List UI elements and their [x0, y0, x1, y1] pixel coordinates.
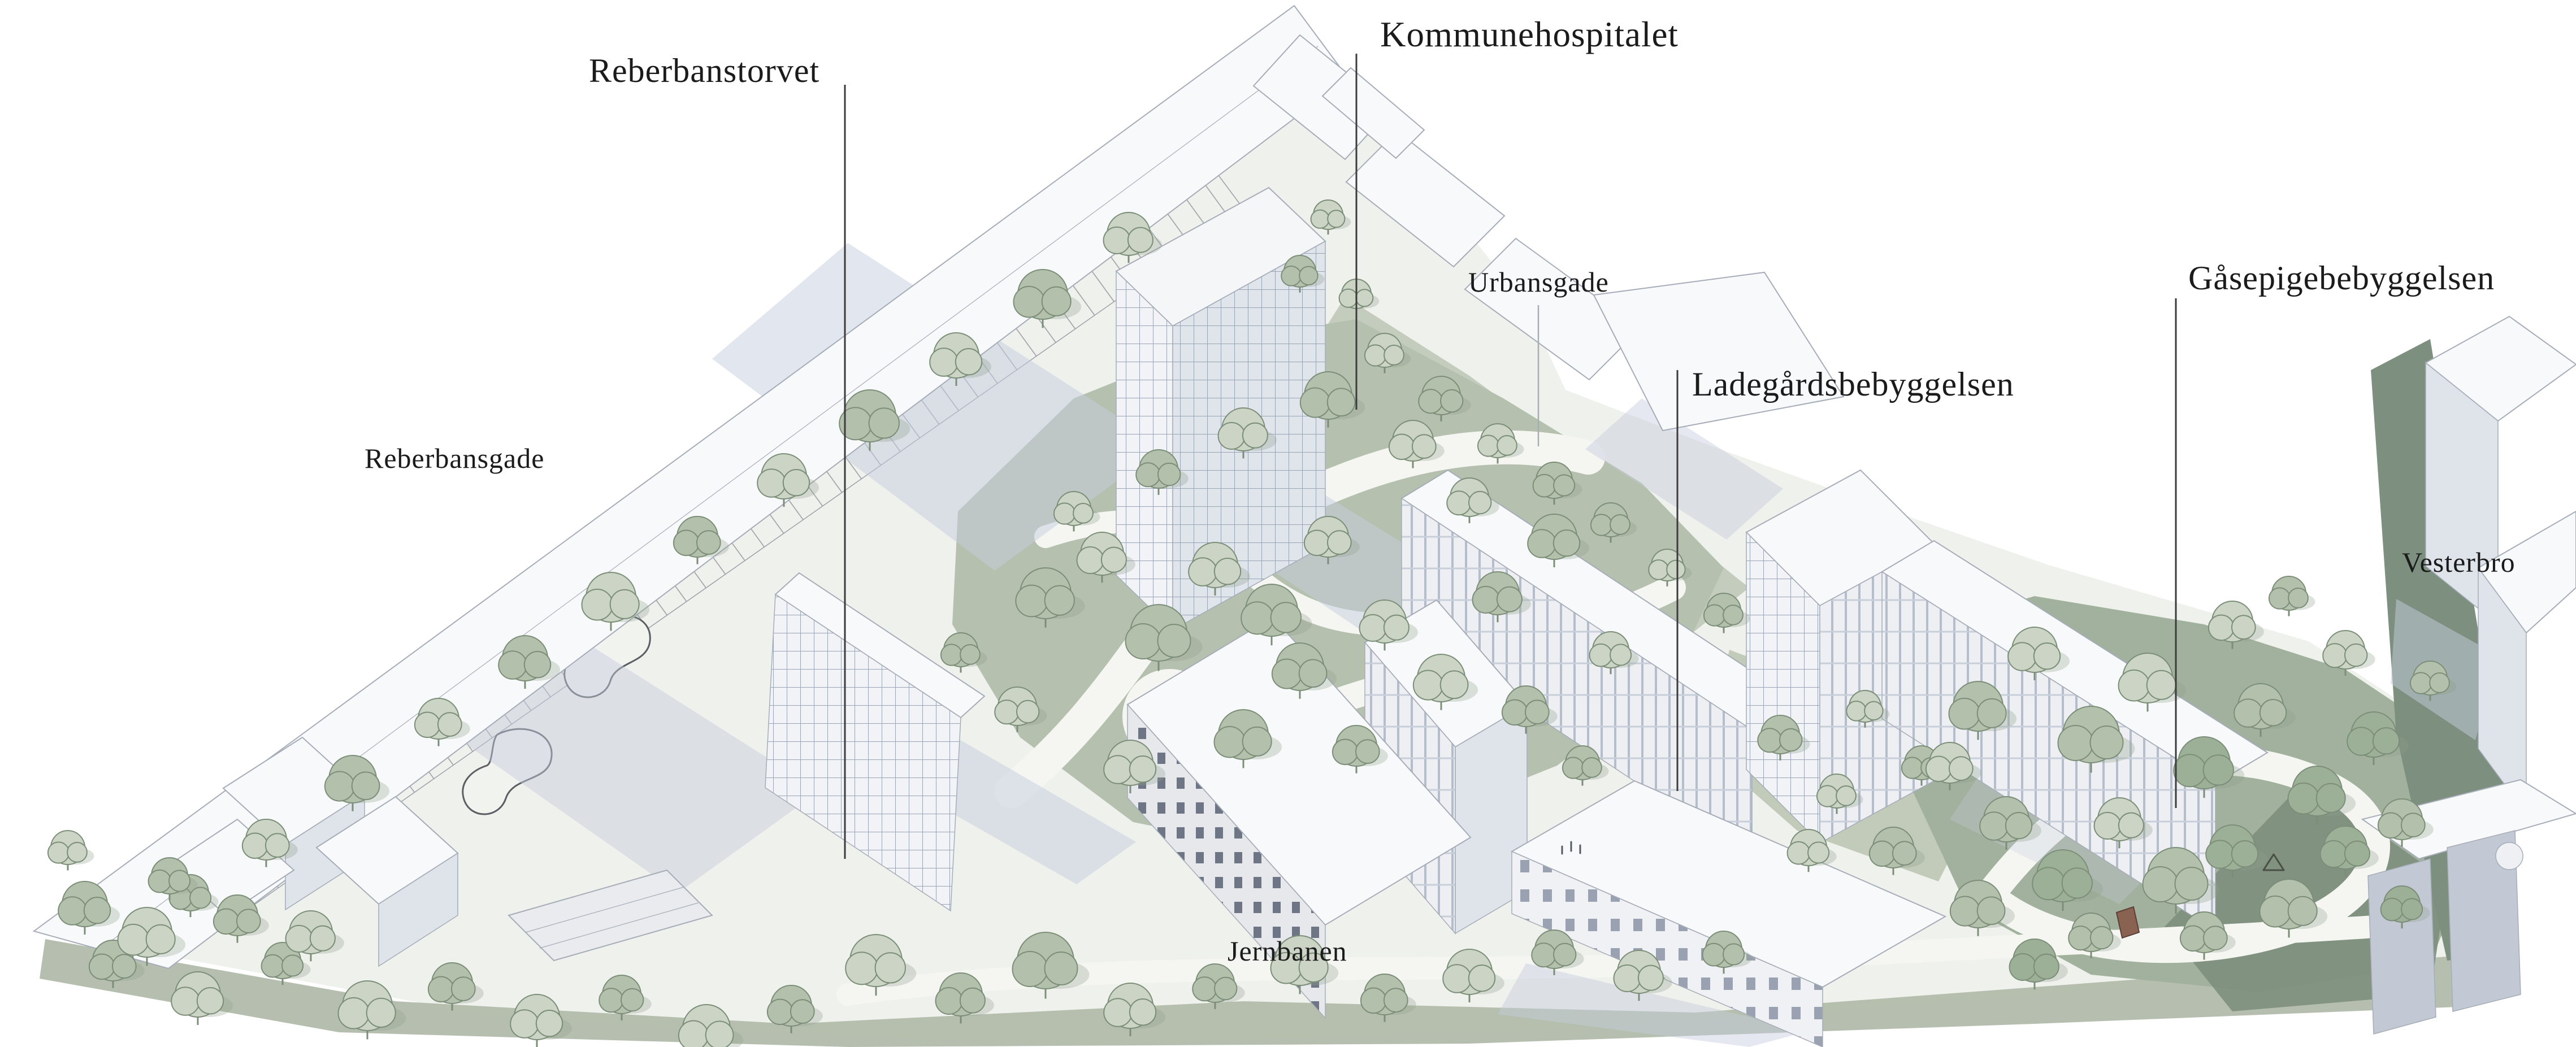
label-gaasepigebebyggelsen: Gåsepigebebyggelsen	[2188, 259, 2495, 297]
tree-canopy	[1300, 388, 1330, 418]
tree-canopy	[367, 998, 396, 1027]
tree-canopy	[1532, 943, 1555, 967]
tree-canopy	[1136, 463, 1160, 486]
tree-canopy	[791, 1000, 814, 1023]
tree-canopy	[1104, 998, 1132, 1027]
tree-canopy	[1130, 756, 1156, 782]
tree-canopy	[1365, 345, 1386, 366]
tree-canopy	[706, 1021, 734, 1047]
tree-canopy	[2034, 643, 2060, 669]
tree-canopy	[1013, 952, 1048, 987]
tree-canopy	[1949, 757, 1973, 780]
tree-canopy	[428, 976, 454, 1002]
tree-canopy	[2204, 926, 2227, 950]
tree-canopy	[2410, 672, 2431, 693]
tree-canopy	[1497, 436, 1517, 455]
tree-canopy	[1846, 701, 1866, 721]
tree-canopy	[1723, 605, 1743, 625]
tree-canopy	[1299, 659, 1327, 687]
tree-canopy	[1328, 531, 1351, 554]
tree-canopy	[610, 590, 639, 619]
tree-canopy	[214, 909, 239, 934]
tree-canopy	[197, 988, 223, 1014]
tree-canopy	[1243, 727, 1272, 756]
tree-canopy	[2209, 615, 2234, 640]
label-jernbanen: Jernbanen	[1228, 935, 1347, 967]
tree-canopy	[2232, 841, 2258, 867]
tree-canopy	[1478, 435, 1499, 456]
tree-canopy	[2323, 644, 2347, 667]
tree-canopy	[118, 924, 149, 955]
tree-canopy	[262, 955, 284, 978]
tree-canopy	[1926, 756, 1951, 781]
tree-canopy	[1104, 227, 1130, 254]
tree-canopy	[171, 987, 200, 1015]
tree-canopy	[2381, 898, 2404, 921]
tree-canopy	[2260, 896, 2291, 927]
tree-canopy	[282, 955, 303, 976]
tree-canopy	[1950, 897, 1980, 926]
tree-canopy	[1361, 988, 1386, 1013]
tree-canopy	[582, 589, 613, 620]
tree-canopy	[310, 926, 335, 951]
tree-canopy	[237, 909, 261, 933]
tree-canopy	[2143, 867, 2178, 902]
tree-canopy	[1014, 286, 1045, 318]
tree-canopy	[1054, 503, 1075, 524]
tree-canopy	[2091, 726, 2123, 759]
tree-canopy	[536, 1010, 562, 1036]
tree-canopy	[783, 470, 809, 496]
tree-canopy	[1104, 755, 1132, 784]
tree-canopy	[1215, 727, 1246, 758]
masterplan-illustration: Reberbanstorvet Kommunehospitalet Urbans…	[0, 0, 2576, 1047]
tree-canopy	[956, 349, 982, 375]
tree-canopy	[1447, 491, 1471, 515]
tree-canopy	[1360, 615, 1386, 641]
tree-canopy	[1128, 228, 1153, 253]
tree-canopy	[1703, 944, 1725, 966]
tree-canopy	[1328, 388, 1355, 416]
tree-canopy	[58, 897, 86, 925]
tree-canopy	[2206, 840, 2234, 868]
tree	[2269, 576, 2315, 616]
tree-canopy	[679, 1021, 708, 1047]
tree-canopy	[1189, 558, 1217, 586]
tree-canopy	[2345, 644, 2367, 666]
tree-canopy	[1469, 965, 1495, 991]
tree-canopy	[1215, 558, 1241, 584]
tree-canopy	[1384, 988, 1408, 1012]
tree-canopy	[524, 651, 550, 677]
tree-canopy	[339, 998, 370, 1029]
tree-canopy	[1638, 966, 1663, 990]
tree-canopy	[2091, 927, 2113, 949]
tree-canopy	[149, 870, 171, 893]
tree-canopy	[1241, 602, 1273, 634]
tree-canopy	[757, 469, 786, 497]
tree-canopy	[2006, 813, 2032, 839]
tree-canopy	[1554, 475, 1575, 496]
tree-canopy	[286, 926, 313, 952]
tree-canopy	[2269, 588, 2290, 609]
tree-canopy	[2034, 954, 2059, 979]
tree-canopy	[1590, 644, 1612, 667]
tree-canopy	[1902, 757, 1923, 778]
label-vesterbro: Vesterbro	[2402, 546, 2516, 578]
label-reberbansgade: Reberbansgade	[365, 442, 544, 474]
tree-canopy	[1218, 423, 1245, 449]
label-reberbanstorvet: Reberbanstorvet	[589, 52, 819, 89]
tree-canopy	[1704, 605, 1725, 625]
hospital-pavilion	[1594, 272, 1844, 431]
tree-canopy	[2288, 897, 2317, 926]
tree-canopy	[2401, 898, 2422, 919]
tree-canopy	[2062, 868, 2092, 898]
tree-canopy	[767, 999, 793, 1024]
tree-canopy	[2288, 783, 2319, 814]
tree-canopy	[936, 988, 962, 1014]
roof-turret	[2496, 842, 2523, 870]
tree-canopy	[2008, 642, 2036, 671]
tree-canopy	[2345, 841, 2370, 866]
tree-canopy	[960, 645, 980, 664]
tree-canopy	[1817, 785, 1838, 806]
tree-canopy	[1977, 897, 2005, 924]
tree-canopy	[1077, 547, 1104, 574]
tree-canopy	[2347, 727, 2375, 755]
tree-canopy	[1949, 698, 1980, 729]
tree-canopy	[498, 651, 527, 679]
tree-canopy	[2175, 867, 2208, 900]
tree-canopy	[1126, 624, 1161, 659]
tree-canopy	[2232, 615, 2256, 639]
tree-canopy	[48, 842, 69, 863]
tree-canopy	[1441, 390, 1463, 412]
tree-canopy	[112, 954, 136, 978]
tree-canopy	[1384, 615, 1409, 640]
tree-canopy	[697, 531, 721, 554]
tree-canopy	[1788, 842, 1810, 864]
tree-canopy	[1339, 289, 1358, 307]
tree-canopy	[869, 408, 899, 438]
tree-canopy	[452, 977, 475, 1001]
tree-canopy	[1419, 389, 1442, 413]
tree-canopy	[2321, 841, 2347, 867]
tree-canopy	[1723, 944, 1744, 965]
tree-canopy	[941, 644, 962, 665]
tree-canopy	[1582, 758, 1602, 777]
tree-canopy	[1554, 944, 1576, 966]
tree	[48, 831, 94, 871]
tree-canopy	[995, 700, 1018, 724]
site-illustration-layer	[34, 6, 2576, 1047]
tree-canopy	[2234, 699, 2262, 727]
tree-canopy	[1469, 492, 1491, 514]
tree-canopy	[84, 897, 110, 923]
tree-canopy	[2430, 673, 2449, 693]
tree-canopy	[1158, 463, 1180, 485]
tree-canopy	[1384, 345, 1404, 365]
tree-canopy	[930, 348, 958, 376]
tree-canopy	[1017, 701, 1039, 723]
tree-canopy	[875, 953, 905, 983]
tree-canopy	[1412, 435, 1436, 458]
tree-canopy	[1502, 700, 1528, 725]
label-kommunehospitalet: Kommunehospitalet	[1380, 15, 1679, 54]
tree-canopy	[1192, 977, 1216, 1001]
label-urbansgade: Urbansgade	[1468, 266, 1609, 298]
tree-canopy	[2260, 700, 2286, 725]
tree-canopy	[1563, 757, 1584, 778]
tree-canopy	[599, 988, 623, 1012]
tree-canopy	[2032, 867, 2065, 900]
tree-canopy	[1328, 210, 1345, 227]
tree-canopy	[1441, 671, 1468, 698]
tree-canopy	[1443, 965, 1471, 993]
tree-canopy	[1497, 587, 1522, 612]
tree-canopy	[1667, 561, 1685, 579]
tree-canopy	[352, 772, 380, 800]
tree-canopy	[1281, 266, 1301, 286]
tree-canopy	[1045, 952, 1078, 985]
tree-canopy	[1304, 530, 1330, 555]
tree-canopy	[1836, 786, 1856, 806]
tree-canopy	[1554, 530, 1580, 556]
tree-canopy	[2010, 954, 2036, 980]
tree-canopy	[1528, 529, 1556, 558]
tree-canopy	[1333, 739, 1358, 764]
tree-canopy	[1977, 699, 2006, 728]
tree-canopy	[1130, 999, 1156, 1025]
tree-canopy	[2147, 671, 2176, 700]
tree-canopy	[2119, 670, 2150, 701]
tree-canopy	[2378, 813, 2404, 838]
tree-canopy	[1473, 587, 1499, 613]
tree-canopy	[510, 1010, 539, 1038]
tree-canopy	[2204, 755, 2234, 785]
tree-canopy	[1610, 515, 1630, 535]
tree-canopy	[1808, 842, 1829, 863]
tree-canopy	[2180, 926, 2206, 951]
tree-canopy	[2317, 784, 2345, 813]
tree-canopy	[1980, 812, 2008, 840]
tree-canopy	[2373, 728, 2399, 754]
tree-canopy	[1016, 585, 1047, 617]
tree-canopy	[2288, 588, 2308, 608]
tree-canopy	[2119, 813, 2144, 838]
tree-canopy	[960, 988, 985, 1013]
tree-canopy	[2094, 813, 2121, 839]
tree-canopy	[266, 833, 289, 857]
tree-canopy	[1870, 841, 1895, 866]
tree-canopy	[1243, 423, 1268, 448]
tree-canopy	[1389, 434, 1415, 459]
masterplan-canvas: Reberbanstorvet Kommunehospitalet Urbans…	[0, 0, 2576, 1047]
vesterbro-block-face	[2368, 859, 2436, 1034]
tree-canopy	[438, 713, 462, 736]
tree-canopy	[1215, 978, 1237, 1000]
tree-canopy	[415, 712, 440, 737]
tree-canopy	[325, 772, 354, 801]
tree-canopy	[1413, 671, 1443, 700]
tree-canopy	[1780, 729, 1802, 751]
tree-canopy	[89, 954, 115, 979]
tree-canopy	[1073, 503, 1093, 523]
tree-canopy	[1533, 475, 1556, 497]
tree-canopy	[2401, 813, 2425, 837]
tree-canopy	[1299, 267, 1317, 285]
tree-canopy	[1649, 560, 1668, 580]
tree-canopy	[1758, 728, 1781, 752]
tree-canopy	[242, 833, 268, 858]
tree-canopy	[674, 530, 699, 555]
tree-canopy	[1042, 287, 1071, 316]
tree-canopy	[1525, 700, 1549, 724]
tree-canopy	[1101, 548, 1126, 572]
tree-canopy	[1893, 841, 1916, 865]
tree-canopy	[1272, 659, 1302, 689]
tree-canopy	[1610, 644, 1631, 665]
tree-canopy	[621, 989, 643, 1011]
tree-canopy	[1045, 586, 1074, 615]
tree-canopy	[1614, 965, 1641, 992]
tree-canopy	[169, 870, 190, 891]
tree-canopy	[1591, 514, 1612, 535]
tree-canopy	[67, 842, 87, 862]
tree-canopy	[1864, 702, 1883, 720]
tree-canopy	[1311, 210, 1329, 228]
label-ladegaardsbebyggelsen: Ladegårdsbebyggelsen	[1692, 366, 2014, 403]
tree-canopy	[2058, 725, 2093, 761]
tree-canopy	[146, 925, 175, 954]
tree-canopy	[845, 952, 878, 984]
tree-canopy	[1158, 624, 1191, 657]
tree-canopy	[1356, 289, 1373, 306]
tree-canopy	[2174, 754, 2206, 787]
tree-canopy	[2068, 926, 2092, 950]
tree-canopy	[1271, 602, 1301, 632]
tree-canopy	[1356, 740, 1380, 763]
